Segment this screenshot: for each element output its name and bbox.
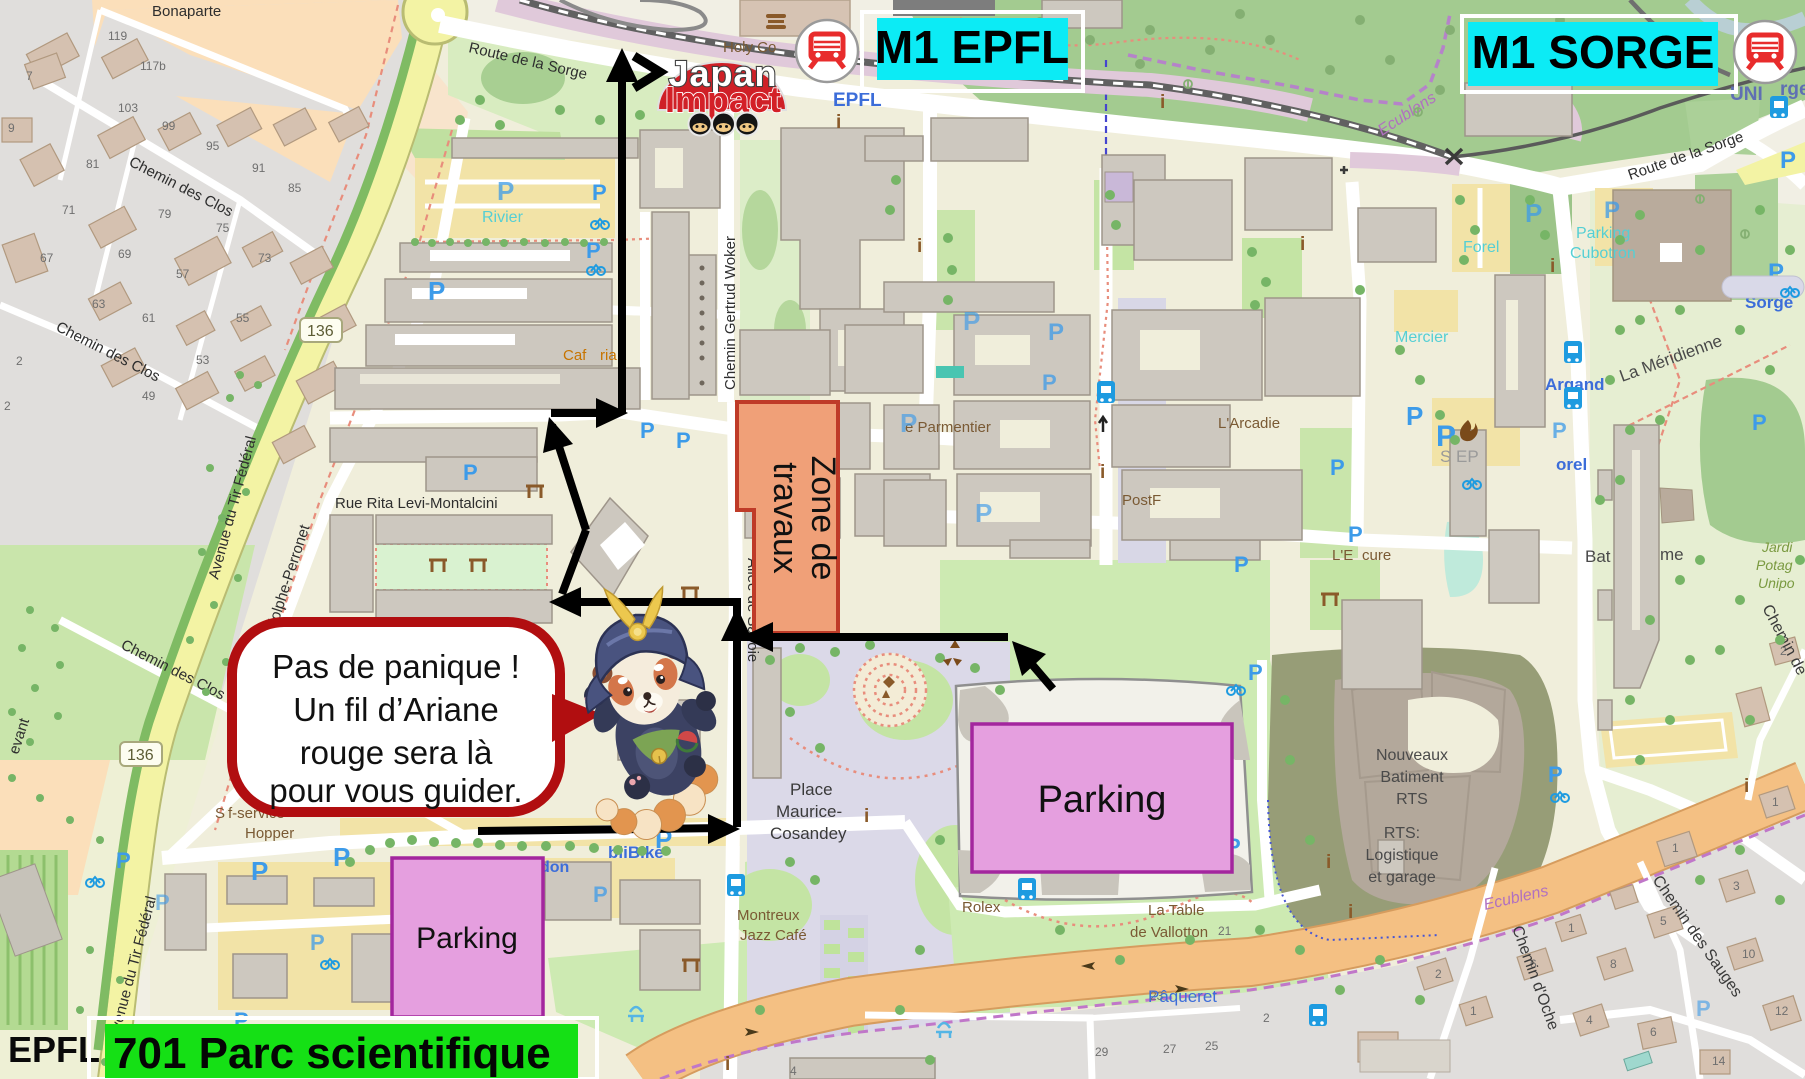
- svg-text:P: P: [155, 890, 170, 915]
- svg-text:P: P: [1548, 762, 1563, 787]
- svg-text:Rolex: Rolex: [962, 899, 1001, 916]
- svg-text:P: P: [1696, 996, 1711, 1021]
- svg-text:69: 69: [118, 247, 132, 261]
- svg-text:RTS: RTS: [1396, 791, 1428, 808]
- svg-text:6: 6: [1650, 1025, 1657, 1039]
- svg-text:L'E: L'E: [1332, 547, 1353, 564]
- svg-text:Cosandey: Cosandey: [770, 824, 847, 843]
- svg-text:75: 75: [216, 221, 230, 235]
- svg-text:M1 EPFL: M1 EPFL: [875, 21, 1069, 73]
- svg-text:701 Parc scientifique: 701 Parc scientifique: [113, 1029, 551, 1078]
- svg-text:Cubotron: Cubotron: [1570, 245, 1636, 262]
- svg-text:EPFL: EPFL: [8, 1029, 100, 1070]
- svg-text:Chemin Gertrud Woker: Chemin Gertrud Woker: [722, 236, 739, 390]
- svg-text:i: i: [1550, 256, 1555, 277]
- svg-text:P: P: [310, 930, 325, 955]
- svg-text:9: 9: [8, 121, 15, 135]
- svg-text:P: P: [592, 180, 607, 205]
- svg-text:P: P: [1604, 197, 1620, 224]
- svg-text:pour vous guider.: pour vous guider.: [269, 772, 522, 809]
- svg-text:i: i: [1100, 462, 1105, 483]
- svg-text:10: 10: [1742, 947, 1756, 961]
- svg-text:P: P: [251, 856, 268, 886]
- svg-text:25: 25: [1205, 1039, 1219, 1053]
- svg-text:95: 95: [206, 139, 220, 153]
- svg-text:1: 1: [1568, 921, 1575, 935]
- svg-text:103: 103: [118, 101, 138, 115]
- svg-text:53: 53: [196, 353, 210, 367]
- svg-text:e Parmentier: e Parmentier: [905, 419, 991, 436]
- svg-text:P: P: [900, 408, 917, 438]
- svg-text:Un fil d’Ariane: Un fil d’Ariane: [293, 691, 498, 728]
- svg-text:rouge sera là: rouge sera là: [300, 734, 493, 771]
- svg-text:1: 1: [1772, 795, 1779, 809]
- svg-text:i: i: [1326, 852, 1331, 873]
- svg-text:P: P: [428, 276, 445, 306]
- svg-text:i: i: [1160, 92, 1165, 113]
- svg-text:i: i: [917, 236, 922, 257]
- svg-text:P: P: [1552, 418, 1567, 443]
- svg-text:1: 1: [1672, 841, 1679, 855]
- svg-text:P: P: [1330, 455, 1345, 480]
- svg-text:i: i: [864, 806, 869, 827]
- svg-text:P: P: [640, 418, 655, 443]
- svg-text:2: 2: [1263, 1011, 1270, 1025]
- svg-text:14: 14: [1712, 1054, 1726, 1068]
- svg-text:4: 4: [1586, 1013, 1593, 1027]
- svg-text:P: P: [1348, 522, 1363, 547]
- svg-text:Unipo: Unipo: [1758, 575, 1795, 591]
- svg-text:Jazz Café: Jazz Café: [740, 927, 807, 944]
- svg-text:79: 79: [158, 207, 172, 221]
- svg-text:21: 21: [1218, 924, 1232, 938]
- svg-text:Rue Rita Levi-Montalcini: Rue Rita Levi-Montalcini: [335, 495, 498, 512]
- svg-text:12: 12: [1775, 1004, 1789, 1018]
- svg-text:PostF: PostF: [1122, 492, 1161, 509]
- svg-text:29: 29: [1095, 1045, 1109, 1059]
- svg-text:P: P: [1248, 660, 1263, 685]
- svg-text:136: 136: [307, 323, 334, 340]
- svg-text:Zone de: Zone de: [804, 456, 842, 581]
- svg-text:91: 91: [252, 161, 266, 175]
- svg-text:P: P: [975, 498, 992, 528]
- svg-text:et garage: et garage: [1368, 869, 1436, 886]
- svg-text:2: 2: [16, 354, 23, 368]
- svg-text:Batiment: Batiment: [1380, 769, 1444, 786]
- svg-text:Jardi: Jardi: [1761, 539, 1793, 555]
- svg-text:P: P: [463, 460, 478, 485]
- svg-text:P: P: [1042, 370, 1057, 395]
- svg-text:117b: 117b: [140, 59, 166, 73]
- svg-text:81: 81: [86, 157, 100, 171]
- svg-text:EPFL: EPFL: [833, 90, 882, 111]
- svg-text:Bonaparte: Bonaparte: [152, 3, 221, 20]
- svg-text:P: P: [676, 428, 691, 453]
- svg-text:5: 5: [1660, 914, 1667, 928]
- svg-text:L'Arcadie: L'Arcadie: [1218, 415, 1280, 432]
- svg-text:85: 85: [288, 181, 302, 195]
- svg-text:Logistique: Logistique: [1366, 847, 1439, 864]
- svg-text:P: P: [593, 882, 608, 907]
- svg-text:Rivier: Rivier: [482, 209, 524, 226]
- svg-text:La Table: La Table: [1148, 902, 1204, 919]
- svg-text:P: P: [1048, 319, 1064, 346]
- svg-text:Maurice-: Maurice-: [776, 802, 842, 821]
- svg-text:Montreux: Montreux: [737, 907, 800, 924]
- svg-text:Parking: Parking: [1038, 779, 1167, 821]
- svg-text:7: 7: [26, 69, 33, 83]
- svg-text:S: S: [215, 805, 225, 822]
- svg-text:P: P: [333, 842, 350, 872]
- svg-text:Potag: Potag: [1756, 557, 1793, 573]
- svg-text:Pas de panique !: Pas de panique !: [272, 648, 520, 685]
- svg-text:Nouveaux: Nouveaux: [1376, 747, 1448, 764]
- svg-text:Forel: Forel: [1463, 239, 1499, 256]
- svg-text:P: P: [116, 848, 131, 873]
- svg-text:i: i: [1300, 234, 1305, 255]
- svg-text:P: P: [586, 238, 601, 263]
- svg-text:73: 73: [258, 251, 272, 265]
- svg-text:de Vallotton: de Vallotton: [1130, 924, 1208, 941]
- svg-text:27: 27: [1163, 1042, 1177, 1056]
- svg-text:orel: orel: [1556, 455, 1587, 474]
- svg-text:P: P: [497, 176, 514, 206]
- svg-text:57: 57: [176, 267, 190, 281]
- svg-text:55: 55: [236, 311, 250, 325]
- svg-text:i: i: [725, 1054, 730, 1075]
- svg-text:Mercier: Mercier: [1395, 329, 1449, 346]
- svg-text:8: 8: [1610, 957, 1617, 971]
- svg-text:Hopper: Hopper: [245, 825, 294, 842]
- svg-text:ria: ria: [600, 347, 617, 364]
- svg-text:4: 4: [790, 1064, 797, 1078]
- svg-text:71: 71: [62, 203, 76, 217]
- svg-text:i: i: [836, 112, 841, 133]
- svg-text:136: 136: [127, 747, 154, 764]
- svg-text:Parking: Parking: [416, 922, 518, 955]
- svg-text:P: P: [1752, 410, 1767, 435]
- svg-text:63: 63: [92, 297, 106, 311]
- svg-text:49: 49: [142, 389, 156, 403]
- svg-text:i: i: [1348, 902, 1353, 923]
- svg-text:P: P: [963, 306, 980, 336]
- svg-text:2: 2: [4, 399, 11, 413]
- svg-text:travaux: travaux: [766, 462, 804, 574]
- svg-text:P: P: [1780, 147, 1796, 174]
- svg-text:3: 3: [1733, 879, 1740, 893]
- svg-text:Bat: Bat: [1585, 547, 1611, 566]
- svg-text:P: P: [1406, 401, 1423, 431]
- svg-text:RTS:: RTS:: [1384, 825, 1420, 842]
- svg-text:67: 67: [40, 251, 54, 265]
- svg-text:119: 119: [108, 29, 127, 43]
- svg-text:M1 SORGE: M1 SORGE: [1472, 26, 1715, 78]
- svg-text:me: me: [1660, 545, 1684, 564]
- svg-text:1: 1: [1470, 1004, 1477, 1018]
- svg-text:Place: Place: [790, 780, 833, 799]
- svg-text:P: P: [1234, 552, 1249, 577]
- svg-text:i: i: [1744, 776, 1749, 797]
- svg-text:99: 99: [162, 119, 176, 133]
- svg-text:cure: cure: [1362, 547, 1391, 564]
- svg-text:61: 61: [142, 311, 156, 325]
- svg-text:S EP: S EP: [1440, 447, 1479, 466]
- svg-text:Caf: Caf: [563, 347, 587, 364]
